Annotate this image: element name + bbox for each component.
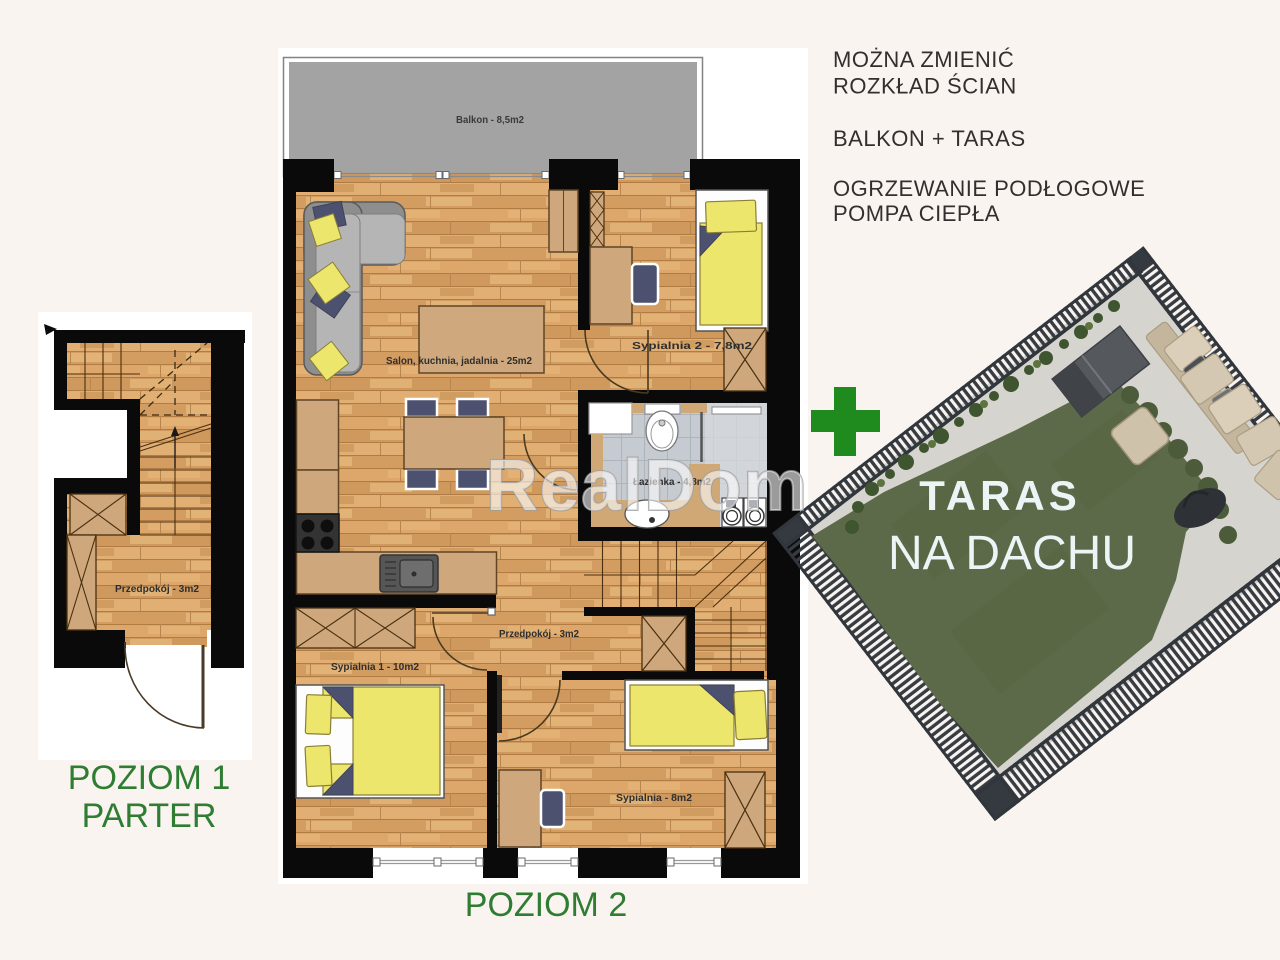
svg-text:MOŻNA ZMIENIĆ: MOŻNA ZMIENIĆ	[833, 47, 1014, 72]
svg-text:Przedpokój - 3m2: Przedpokój - 3m2	[115, 583, 199, 595]
svg-text:Balkon - 8,5m2: Balkon - 8,5m2	[456, 114, 524, 126]
svg-text:POMPA CIEPŁA: POMPA CIEPŁA	[833, 201, 1000, 226]
svg-text:POZIOM 1: POZIOM 1	[68, 759, 230, 797]
svg-text:PARTER: PARTER	[82, 797, 217, 835]
svg-text:Przedpokój - 3m2: Przedpokój - 3m2	[499, 628, 579, 640]
svg-text:Sypialnia 1 - 10m2: Sypialnia 1 - 10m2	[331, 661, 419, 673]
svg-text:Sypialnia - 8m2: Sypialnia - 8m2	[616, 792, 692, 804]
svg-text:ROZKŁAD ŚCIAN: ROZKŁAD ŚCIAN	[833, 74, 1017, 99]
svg-text:Sypialnia 2 - 7,8m2: Sypialnia 2 - 7,8m2	[632, 340, 752, 352]
svg-text:Salon, kuchnia, jadalnia - 25m: Salon, kuchnia, jadalnia - 25m2	[386, 355, 532, 367]
svg-text:RealDom: RealDom	[486, 446, 809, 526]
svg-text:NA DACHU: NA DACHU	[888, 527, 1136, 580]
svg-text:TARAS: TARAS	[919, 472, 1081, 519]
svg-text:OGRZEWANIE PODŁOGOWE: OGRZEWANIE PODŁOGOWE	[833, 176, 1145, 201]
svg-text:POZIOM 2: POZIOM 2	[465, 886, 627, 924]
svg-text:BALKON + TARAS: BALKON + TARAS	[833, 126, 1026, 151]
